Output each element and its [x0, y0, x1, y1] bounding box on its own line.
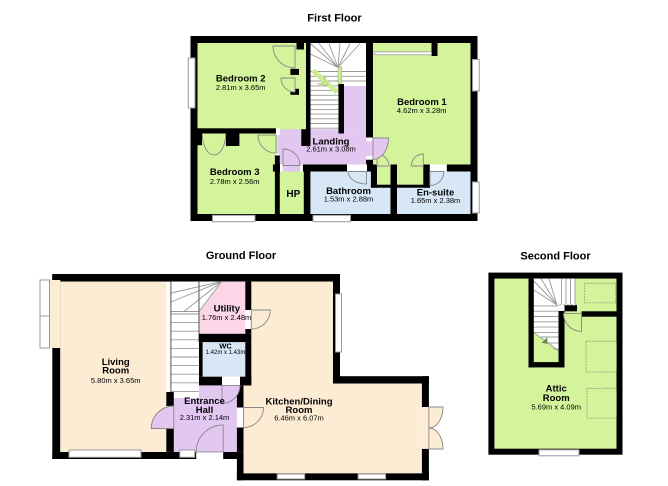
svg-text:5.69m x 4.09m: 5.69m x 4.09m: [531, 402, 581, 411]
svg-text:2.31m x 2.14m: 2.31m x 2.14m: [180, 413, 230, 422]
svg-text:HP: HP: [286, 189, 300, 200]
svg-text:1.42m x 1.43m: 1.42m x 1.43m: [206, 350, 246, 356]
svg-text:6.46m x 6.07m: 6.46m x 6.07m: [274, 413, 324, 422]
svg-text:Room: Room: [102, 366, 129, 377]
svg-text:Second Floor: Second Floor: [520, 251, 591, 263]
svg-text:1.53m x 2.88m: 1.53m x 2.88m: [324, 194, 374, 203]
svg-text:4.62m x 3.28m: 4.62m x 3.28m: [397, 106, 447, 115]
svg-text:2.78m x 2.56m: 2.78m x 2.56m: [210, 177, 260, 186]
svg-text:2.81m x 3.65m: 2.81m x 3.65m: [216, 83, 266, 92]
svg-text:1.65m x 2.38m: 1.65m x 2.38m: [411, 196, 461, 205]
svg-text:Ground Floor: Ground Floor: [206, 250, 277, 262]
svg-text:1.76m x 2.48m: 1.76m x 2.48m: [202, 313, 252, 322]
svg-text:2.61m x 3.08m: 2.61m x 3.08m: [306, 145, 356, 154]
svg-text:5.80m x 3.65m: 5.80m x 3.65m: [91, 376, 141, 385]
svg-text:First Floor: First Floor: [307, 13, 362, 25]
